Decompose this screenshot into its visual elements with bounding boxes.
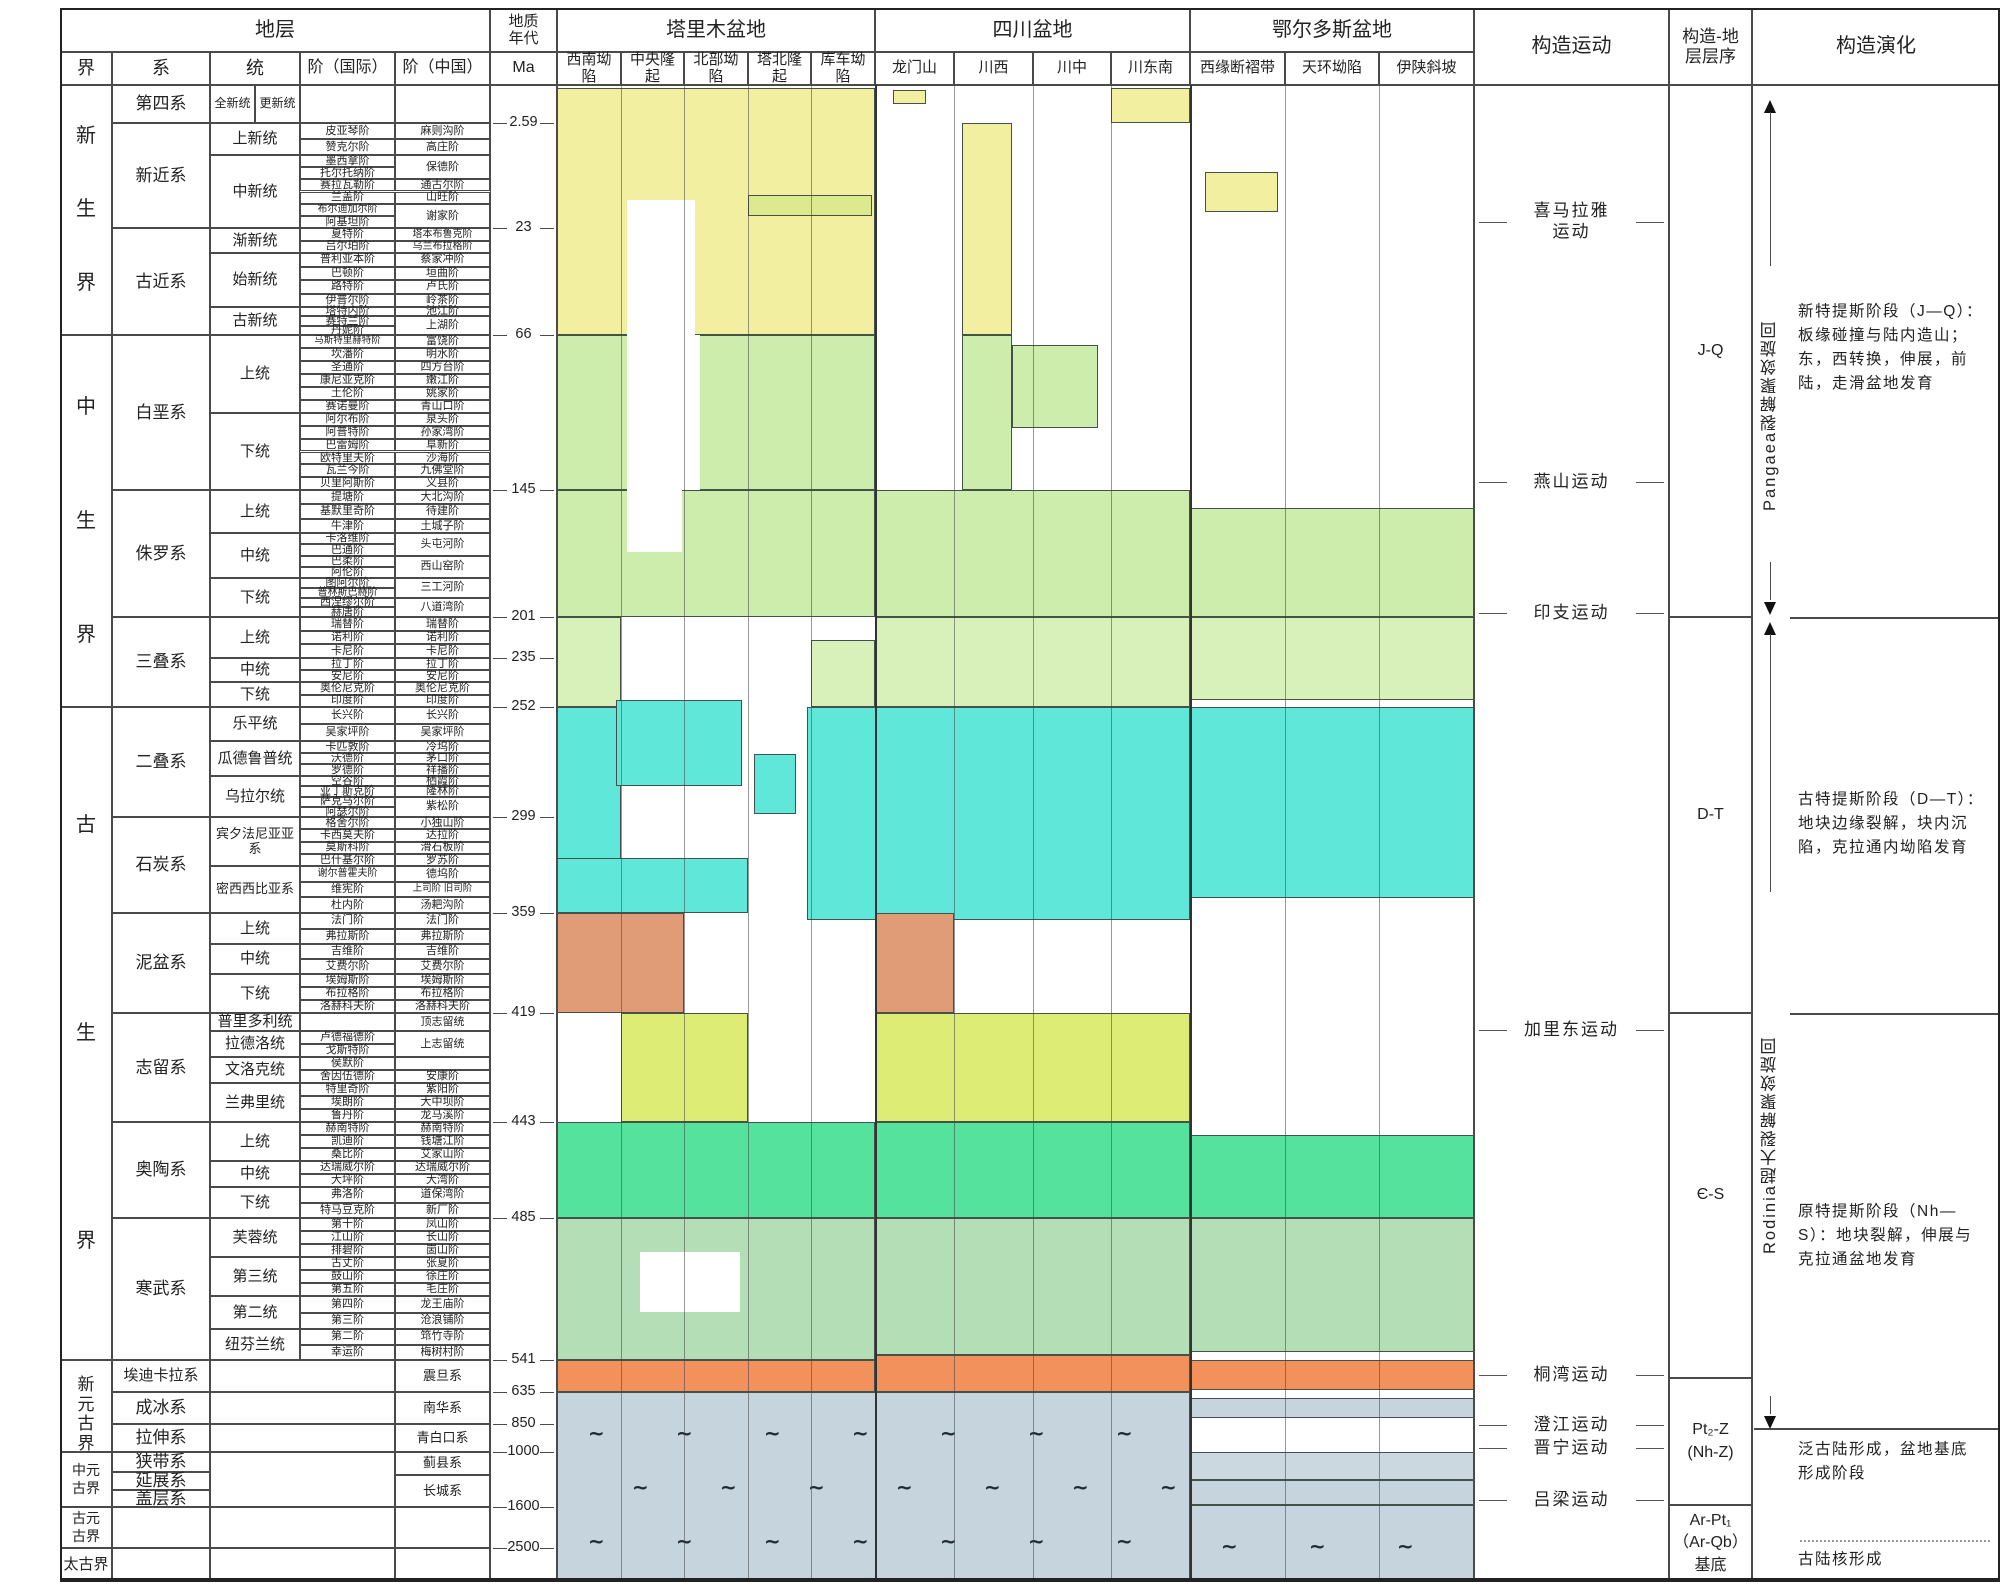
pc-cn-system-cell: 震旦系 — [395, 1360, 490, 1392]
stage-cn-cell: 沧浪铺阶 — [395, 1313, 490, 1330]
movement-tick — [1479, 482, 1507, 483]
stage-intl-cell: 法门阶 — [300, 913, 395, 929]
header-basin-col: 川东南 — [1111, 52, 1190, 85]
evolution-text: 古陆核形成 — [1798, 1548, 1984, 1572]
header-era: 界 — [60, 52, 112, 85]
lith-block-tr — [1190, 617, 1474, 700]
stage-intl-cell: 特马豆克阶 — [300, 1203, 395, 1219]
system-cell: 侏罗系 — [112, 490, 210, 617]
cycle-line — [1770, 634, 1771, 892]
stage-cn-cell: 毛庄阶 — [395, 1283, 490, 1296]
movement-tick — [1479, 222, 1507, 223]
ma-tick-label: 23 — [492, 219, 555, 235]
system-cell: 第四系 — [112, 85, 210, 123]
stage-cn-cell: 卢氏阶 — [395, 280, 490, 294]
era-char: 生 — [76, 1022, 96, 1045]
cycle-arrow-down — [1764, 602, 1776, 615]
pc-cn-system-cell: 蓟县系 — [395, 1452, 490, 1475]
series-cell: 上统 — [210, 335, 300, 413]
stage-intl-cell: 阿尔布阶 — [300, 413, 395, 426]
stage-intl-cell: 诺利阶 — [300, 631, 395, 645]
era-char: 古 — [76, 814, 96, 837]
stage-intl-cell: 赫唐阶 — [300, 607, 395, 617]
stage-intl-cell: 排碧阶 — [300, 1244, 395, 1257]
series-cell: 中统 — [210, 658, 300, 682]
ma-tick-label: 443 — [492, 1113, 555, 1129]
stage-cn-cell: 梅树村阶 — [395, 1345, 490, 1361]
series-cell: 下统 — [210, 1187, 300, 1218]
ma-tick-label: 419 — [492, 1004, 555, 1020]
header-basin-3: 鄂尔多斯盆地 — [1190, 8, 1474, 52]
stage-intl-cell: 舍因伍德阶 — [300, 1070, 395, 1083]
header-basin-col: 北部坳陷 — [684, 52, 748, 85]
stage-cn-cell: 青山口阶 — [395, 400, 490, 413]
stage-intl-cell: 吉维阶 — [300, 944, 395, 959]
stage-cn-cell: 茅口阶 — [395, 753, 490, 765]
lith-block-czBrick — [748, 195, 872, 216]
system-cell: 三叠系 — [112, 617, 210, 707]
stage-cn-cell: 姚家阶 — [395, 387, 490, 400]
stage-cn-cell: 蔡家冲阶 — [395, 253, 490, 267]
era-char: 界 — [76, 1230, 96, 1253]
stage-cn-cell: 上志留统 — [395, 1031, 490, 1057]
series-cell: 纽芬兰统 — [210, 1329, 300, 1360]
ma-tick-label: 1600 — [492, 1498, 555, 1514]
system-cell: 志留系 — [112, 1013, 210, 1122]
stage-cn-cell: 上湖阶 — [395, 316, 490, 335]
tectonic-movement-column — [1474, 85, 1669, 1582]
stage-cn-cell: 罗苏阶 — [395, 854, 490, 866]
cycle-line — [1770, 562, 1771, 600]
stage-cn-cell: 乌兰布拉格阶 — [395, 241, 490, 254]
pc-cn-system-cell — [395, 1548, 490, 1582]
stage-cn-cell: 瑞替阶 — [395, 617, 490, 631]
evolution-divider — [1800, 1540, 1990, 1542]
stage-intl-cell: 阿瑟尔阶 — [300, 807, 395, 817]
sequence-label: （Ar-Qb） — [1673, 1532, 1748, 1554]
stage-intl-cell: 马斯特里赫特阶 — [300, 335, 395, 348]
era-char: 新 — [78, 1375, 95, 1395]
stage-intl-cell: 坎潘阶 — [300, 348, 395, 361]
stage-intl-cell — [300, 85, 395, 123]
sequence-label: 基底 — [1694, 1555, 1726, 1577]
movement-tick — [1479, 613, 1507, 614]
stage-intl-cell: 牛津阶 — [300, 519, 395, 533]
header-geo-time: 地质 年代 — [490, 8, 557, 52]
lith-block-bs — [1190, 1480, 1474, 1505]
lith-block-pc — [557, 858, 748, 913]
ma-tick-label: 635 — [492, 1383, 555, 1399]
stage-intl-cell: 大坪阶 — [300, 1174, 395, 1187]
movement-tick — [1636, 613, 1664, 614]
metamorphic-symbol: ∼ — [588, 1421, 605, 1446]
movement-tick — [1479, 1500, 1507, 1501]
series-cell: 文洛克统 — [210, 1057, 300, 1083]
movement-tick — [1636, 1375, 1664, 1376]
stage-intl-cell: 托尔托纳阶 — [300, 167, 395, 179]
stage-intl-cell: 拉丁阶 — [300, 658, 395, 670]
column-separator — [811, 85, 812, 1582]
sequence-label: D-T — [1697, 804, 1724, 826]
stage-intl-cell: 谢尔普霍夫阶 — [300, 866, 395, 882]
column-separator — [1111, 85, 1112, 1582]
stage-intl-cell: 布拉格阶 — [300, 987, 395, 1000]
stage-intl-cell: 弗拉斯阶 — [300, 929, 395, 945]
system-cell: 奥陶系 — [112, 1122, 210, 1218]
stage-cn-cell: 嫩江阶 — [395, 374, 490, 387]
era-cell: 新生界 — [60, 85, 112, 335]
stage-intl-cell: 古丈阶 — [300, 1257, 395, 1270]
stage-intl-cell: 戈斯特阶 — [300, 1044, 395, 1057]
stage-cn-cell: 九佛堂阶 — [395, 464, 490, 477]
column-separator — [748, 85, 749, 1582]
column-separator — [954, 85, 955, 1582]
stage-cn-cell: 四方台阶 — [395, 361, 490, 374]
system-cell: 寒武系 — [112, 1218, 210, 1360]
series-cell: 密西西比亚系 — [210, 866, 300, 913]
stage-cn-cell: 塔本布鲁克阶 — [395, 228, 490, 241]
header-basin-col: 龙门山 — [875, 52, 954, 85]
stage-cn-cell: 法门阶 — [395, 913, 490, 929]
evolution-text: 古特提斯阶段（D—T）：地块边缘裂解，块内沉陷，克拉通内坳陷发育 — [1798, 788, 1984, 860]
stage-intl-cell: 维宪阶 — [300, 882, 395, 898]
evolution-text: 新特提斯阶段（J—Q）：板缘碰撞与陆内造山；东，西转换，伸展，前陆，走滑盆地发育 — [1798, 300, 1984, 396]
stage-intl-cell: 墨西拿阶 — [300, 155, 395, 167]
era-char: 中 — [76, 396, 96, 419]
cycle-arrow-down — [1764, 1416, 1776, 1429]
header-basin-col: 西南坳陷 — [557, 52, 621, 85]
stage-cn-cell: 达瑞威尔阶 — [395, 1161, 490, 1174]
metamorphic-symbol: ∼ — [632, 1475, 649, 1500]
stage-cn-cell: 大北沟阶 — [395, 490, 490, 504]
ma-tick-label: 359 — [492, 904, 555, 920]
series-cell: 普里多利统 — [210, 1013, 300, 1031]
stage-intl-cell: 艾费尔阶 — [300, 959, 395, 974]
evolution-text: 原特提斯阶段（Nh—S）：地块裂解，伸展与克拉通盆地发育 — [1798, 1200, 1984, 1272]
lith-block-pc — [1190, 707, 1474, 898]
stage-cn-cell: 弗拉斯阶 — [395, 929, 490, 945]
series-cell: 古新统 — [210, 307, 300, 335]
ma-tick-label: 66 — [492, 326, 555, 342]
stage-cn-cell: 通古尔阶 — [395, 179, 490, 191]
header-stage-intl: 阶（国际） — [300, 52, 395, 85]
stage-cn-cell: 安康阶 — [395, 1070, 490, 1083]
stage-cn-cell: 紫阳阶 — [395, 1083, 490, 1096]
stage-cn-cell: 顶志留统 — [395, 1013, 490, 1031]
stage-intl-cell: 洛赫科夫阶 — [300, 1000, 395, 1013]
stage-intl-cell: 提塘阶 — [300, 490, 395, 504]
header-basin-col: 伊陕斜坡 — [1379, 52, 1474, 85]
metamorphic-symbol: ∼ — [1072, 1475, 1089, 1500]
movement-tick — [1636, 1500, 1664, 1501]
stage-cn-cell: 德坞阶 — [395, 866, 490, 882]
system-cell: 拉伸系 — [112, 1424, 210, 1452]
movement-label: 加里东运动 — [1504, 1019, 1639, 1040]
system-cell: 延展系 — [112, 1472, 210, 1490]
stage-intl-cell: 第五阶 — [300, 1283, 395, 1296]
stage-cn-cell: 头屯河阶 — [395, 533, 490, 556]
era-char: 界 — [76, 272, 96, 295]
stage-cn-cell: 三工河阶 — [395, 578, 490, 598]
sequence-cell: Ar-Pt₁（Ar-Qb）基底 — [1669, 1505, 1752, 1582]
stage-cn-cell: 汤耙沟阶 — [395, 897, 490, 913]
stage-intl-cell: 赛拉瓦勒阶 — [300, 179, 395, 191]
header-basin-col: 中央隆起 — [621, 52, 684, 85]
pc-empty-cell — [210, 1392, 395, 1424]
movement-label: 喜马拉雅 运动 — [1504, 200, 1639, 243]
stage-intl-cell: 卡西莫夫阶 — [300, 829, 395, 841]
pc-empty-cell — [210, 1548, 395, 1582]
ma-tick-label: 299 — [492, 808, 555, 824]
stage-intl-cell: 土伦阶 — [300, 387, 395, 400]
stage-intl-cell: 第三阶 — [300, 1313, 395, 1330]
system-cell — [112, 1507, 210, 1548]
era-char: 生 — [76, 510, 96, 533]
system-cell: 埃迪卡拉系 — [112, 1360, 210, 1392]
stage-cn-cell: 待建阶 — [395, 504, 490, 518]
stage-cn-cell: 麻则沟阶 — [395, 123, 490, 139]
system-cell: 盖层系 — [112, 1490, 210, 1507]
header-ma: Ma — [490, 52, 557, 85]
era-cell: 中元古界 — [60, 1452, 112, 1507]
lith-block-cz — [893, 90, 926, 104]
stage-cn-cell: 西山窑阶 — [395, 556, 490, 579]
ma-tick-label: 485 — [492, 1209, 555, 1225]
evolution-divider — [1790, 1013, 2000, 1015]
stage-intl-cell: 布尔迪加尔阶 — [300, 204, 395, 216]
series-cell: 中新统 — [210, 155, 300, 228]
stage-cn-cell: 土城子阶 — [395, 519, 490, 533]
movement-label: 燕山运动 — [1504, 471, 1639, 492]
lith-block-cz — [1111, 88, 1190, 123]
movement-tick — [1479, 1375, 1507, 1376]
stage-cn-cell: 谢家阶 — [395, 204, 490, 228]
metamorphic-symbol: ∼ — [1116, 1421, 1133, 1446]
sequence-cell: D-T — [1669, 617, 1752, 1013]
stage-cn-cell: 奥伦尼克阶 — [395, 682, 490, 695]
stage-cn-cell: 拉丁阶 — [395, 658, 490, 670]
era-char: 生 — [76, 198, 96, 221]
pc-cn-system-cell: 长城系 — [395, 1475, 490, 1507]
stage-cn-cell: 长兴阶 — [395, 707, 490, 724]
movement-tick — [1636, 482, 1664, 483]
series-cell: 中统 — [210, 944, 300, 974]
header-basin-1: 塔里木盆地 — [557, 8, 875, 52]
lith-block-tr — [811, 640, 875, 707]
sequence-label: Ar-Pt₁ — [1690, 1510, 1732, 1532]
stage-intl-cell: 桑比阶 — [300, 1148, 395, 1161]
stage-intl-cell: 沃德阶 — [300, 753, 395, 765]
header-tectono-seq: 构造-地层层序 — [1669, 8, 1752, 85]
sequence-label: Є-S — [1697, 1184, 1725, 1206]
stage-intl-cell: 圣通阶 — [300, 361, 395, 374]
metamorphic-symbol: ∼ — [1028, 1421, 1045, 1446]
era-cell: 新元古界 — [60, 1360, 112, 1452]
sequence-cell: Є-S — [1669, 1013, 1752, 1378]
stage-intl-cell: 江山阶 — [300, 1231, 395, 1244]
stage-intl-cell: 卡匹敦阶 — [300, 741, 395, 753]
series-cell: 上统 — [210, 617, 300, 658]
era-cell: 太古界 — [60, 1548, 112, 1582]
stage-intl-cell: 幸运阶 — [300, 1345, 395, 1361]
stage-cn-cell: 高庄阶 — [395, 139, 490, 155]
header-basin-col: 川中 — [1033, 52, 1111, 85]
movement-tick — [1479, 1030, 1507, 1031]
pc-empty-cell — [210, 1360, 395, 1392]
stage-cn-cell: 吴家坪阶 — [395, 724, 490, 741]
stage-cn-cell — [395, 85, 490, 123]
movement-tick — [1636, 1030, 1664, 1031]
pc-empty-cell — [210, 1424, 395, 1452]
metamorphic-symbol: ∼ — [1160, 1475, 1177, 1500]
series-cell: 宾夕法尼亚亚系 — [210, 817, 300, 866]
stage-cn-cell: 垣曲阶 — [395, 267, 490, 281]
era-label: 中元古界 — [69, 1462, 103, 1497]
series-cell: 更新统 — [255, 85, 300, 123]
stage-intl-cell: 鲁丹阶 — [300, 1109, 395, 1122]
metamorphic-symbol: ∼ — [720, 1475, 737, 1500]
stage-intl-cell: 路特阶 — [300, 280, 395, 294]
series-cell: 乌拉尔统 — [210, 776, 300, 817]
stage-cn-cell: 八道湾阶 — [395, 598, 490, 618]
column-separator — [1285, 85, 1286, 1582]
system-cell: 二叠系 — [112, 707, 210, 817]
movement-tick — [1636, 222, 1664, 223]
header-strata: 地层 — [60, 8, 490, 52]
stage-cn-cell: 艾费尔阶 — [395, 959, 490, 974]
header-basin-col: 塔北隆起 — [748, 52, 811, 85]
ma-tick-label: 235 — [492, 649, 555, 665]
metamorphic-symbol: ∼ — [896, 1475, 913, 1500]
stage-intl-cell: 鼓山阶 — [300, 1270, 395, 1283]
stage-cn-cell: 崮山阶 — [395, 1244, 490, 1257]
lith-block-pc — [616, 700, 742, 786]
stage-intl-cell: 长兴阶 — [300, 707, 395, 724]
system-cell: 石炭系 — [112, 817, 210, 913]
lith-block-or — [1190, 1135, 1474, 1218]
series-cell: 瓜德鲁普统 — [210, 741, 300, 776]
column-separator — [621, 85, 622, 1582]
stage-intl-cell: 欧特里夫阶 — [300, 452, 395, 465]
lith-block-kj — [1190, 508, 1474, 617]
lith-block-tr — [557, 617, 621, 707]
ma-tick-label: 541 — [492, 1351, 555, 1367]
system-cell: 成冰系 — [112, 1392, 210, 1424]
stage-intl-cell: 卡尼阶 — [300, 644, 395, 658]
stage-cn-cell: 凤山阶 — [395, 1218, 490, 1231]
stage-cn-cell: 山旺阶 — [395, 192, 490, 204]
series-cell: 全新统 — [210, 85, 255, 123]
series-cell: 上统 — [210, 1122, 300, 1161]
stage-cn-cell: 新厂阶 — [395, 1203, 490, 1219]
stage-cn-cell: 筇竹寺阶 — [395, 1329, 490, 1345]
ma-tick-label: 2.59 — [492, 114, 555, 130]
sequence-cell: J-Q — [1669, 85, 1752, 617]
stage-cn-cell: 徐庄阶 — [395, 1270, 490, 1283]
stage-cn-cell: 诺利阶 — [395, 631, 490, 645]
series-cell: 拉德洛统 — [210, 1031, 300, 1057]
stage-cn-cell: 大中坝阶 — [395, 1096, 490, 1109]
cycle-label: Rodinia超大裂解聚敛旋回 — [1757, 894, 1783, 1396]
stage-intl-cell: 弗洛阶 — [300, 1187, 395, 1203]
metamorphic-symbol: ∼ — [764, 1529, 781, 1554]
stage-cn-cell: 吉维阶 — [395, 944, 490, 959]
sequence-cell: Pt₂-Z(Nh-Z) — [1669, 1378, 1752, 1505]
lith-block-ed — [1190, 1360, 1474, 1390]
stage-intl-cell: 特里奇阶 — [300, 1083, 395, 1096]
stage-intl-cell: 吕尔珀阶 — [300, 241, 395, 254]
system-cell: 白垩系 — [112, 335, 210, 490]
series-cell: 下统 — [210, 682, 300, 707]
metamorphic-symbol: ∼ — [852, 1421, 869, 1446]
header-system: 系 — [112, 52, 210, 85]
lith-block-cz — [1205, 172, 1278, 212]
evolution-divider — [1790, 617, 2000, 619]
stage-cn-cell: 张夏阶 — [395, 1257, 490, 1270]
series-cell: 上统 — [210, 490, 300, 533]
header-basin-col: 川西 — [954, 52, 1033, 85]
stage-cn-cell: 保德阶 — [395, 155, 490, 179]
metamorphic-symbol: ∼ — [1028, 1529, 1045, 1554]
stage-cn-cell: 滑石板阶 — [395, 842, 490, 854]
stage-cn-cell: 艾家山阶 — [395, 1148, 490, 1161]
evolution-text: 泛古陆形成，盆地基底形成阶段 — [1798, 1438, 1984, 1486]
movement-tick — [1479, 1425, 1507, 1426]
stage-cn-cell: 紫松阶 — [395, 797, 490, 818]
stage-intl-cell: 第四阶 — [300, 1296, 395, 1313]
series-cell: 上统 — [210, 913, 300, 944]
system-cell: 狭带系 — [112, 1452, 210, 1472]
lith-block-pc — [754, 754, 796, 814]
stage-intl-cell: 基默里奇阶 — [300, 504, 395, 518]
cycle-line — [1770, 1396, 1771, 1414]
movement-tick — [1636, 1448, 1664, 1449]
metamorphic-symbol: ∼ — [588, 1529, 605, 1554]
metamorphic-symbol: ∼ — [1309, 1534, 1326, 1559]
stage-cn-cell: 小独山阶 — [395, 817, 490, 829]
stage-cn-cell: 龙马溪阶 — [395, 1109, 490, 1122]
stage-intl-cell: 格舍尔阶 — [300, 817, 395, 829]
movement-label: 澄江运动 — [1504, 1414, 1639, 1435]
stage-cn-cell: 钱塘江阶 — [395, 1135, 490, 1148]
era-cell: 中生界 — [60, 335, 112, 707]
stage-cn-cell: 明水阶 — [395, 348, 490, 361]
era-char: 元 — [78, 1395, 95, 1415]
stage-intl-cell: 阿基坦阶 — [300, 216, 395, 228]
era-char: 新 — [76, 125, 96, 148]
movement-tick — [1479, 1448, 1507, 1449]
stage-cn-cell: 印度阶 — [395, 695, 490, 708]
stage-intl-cell: 巴雷姆阶 — [300, 439, 395, 452]
stage-cn-cell: 卡尼阶 — [395, 644, 490, 658]
stage-intl-cell: 巴什基尔阶 — [300, 854, 395, 866]
era-char: 界 — [76, 624, 96, 647]
lith-block-bsb — [1190, 1452, 1474, 1480]
pc-cn-system-cell: 南华系 — [395, 1392, 490, 1424]
stage-intl-cell: 赛诺曼阶 — [300, 400, 395, 413]
pc-cn-system-cell — [395, 1507, 490, 1548]
stage-cn-cell: 达拉阶 — [395, 829, 490, 841]
stage-cn-cell: 长山阶 — [395, 1231, 490, 1244]
series-cell: 下统 — [210, 578, 300, 617]
evolution-divider — [1754, 1428, 2000, 1430]
era-cell: 古生界 — [60, 707, 112, 1360]
stage-intl-cell: 达瑞威尔阶 — [300, 1161, 395, 1174]
stage-intl-cell: 赞克尔阶 — [300, 139, 395, 155]
stage-intl-cell: 莫斯科阶 — [300, 842, 395, 854]
ma-tick-label: 1000 — [492, 1443, 555, 1459]
series-cell: 第二统 — [210, 1296, 300, 1329]
